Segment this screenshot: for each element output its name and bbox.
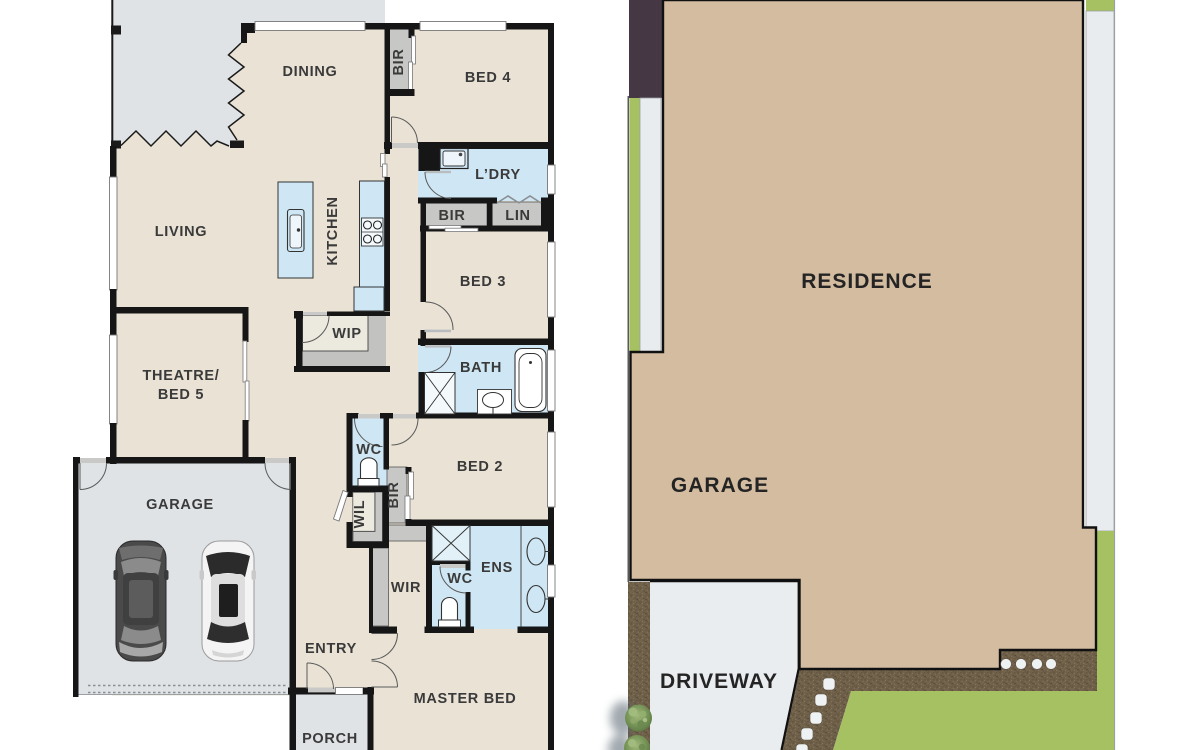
svg-text:DINING: DINING <box>283 64 338 80</box>
svg-text:BED 4: BED 4 <box>465 70 511 86</box>
svg-text:DRIVEWAY: DRIVEWAY <box>660 670 778 693</box>
svg-text:WC: WC <box>356 442 382 458</box>
svg-text:BED 5: BED 5 <box>158 387 204 403</box>
svg-text:WIP: WIP <box>332 326 362 342</box>
svg-text:L’DRY: L’DRY <box>475 167 521 183</box>
svg-text:ENS: ENS <box>481 560 513 576</box>
svg-text:BATH: BATH <box>460 360 502 376</box>
svg-text:KITCHEN: KITCHEN <box>325 196 341 265</box>
svg-text:BIR: BIR <box>391 48 407 75</box>
svg-text:WIR: WIR <box>391 580 421 596</box>
svg-text:WIL: WIL <box>352 500 368 529</box>
svg-text:LIVING: LIVING <box>155 224 208 240</box>
svg-text:MASTER BED: MASTER BED <box>414 691 517 707</box>
svg-text:THEATRE/: THEATRE/ <box>142 368 219 384</box>
svg-text:BED 2: BED 2 <box>457 459 503 475</box>
svg-text:BIR: BIR <box>386 481 402 508</box>
svg-text:GARAGE: GARAGE <box>146 497 214 513</box>
svg-text:RESIDENCE: RESIDENCE <box>801 270 933 293</box>
svg-text:PORCH: PORCH <box>302 731 358 747</box>
svg-text:ENTRY: ENTRY <box>305 641 357 657</box>
svg-text:WC: WC <box>447 571 473 587</box>
svg-text:BED 3: BED 3 <box>460 274 506 290</box>
svg-text:BIR: BIR <box>438 208 465 224</box>
svg-text:LIN: LIN <box>505 208 530 224</box>
svg-text:GARAGE: GARAGE <box>671 474 769 497</box>
